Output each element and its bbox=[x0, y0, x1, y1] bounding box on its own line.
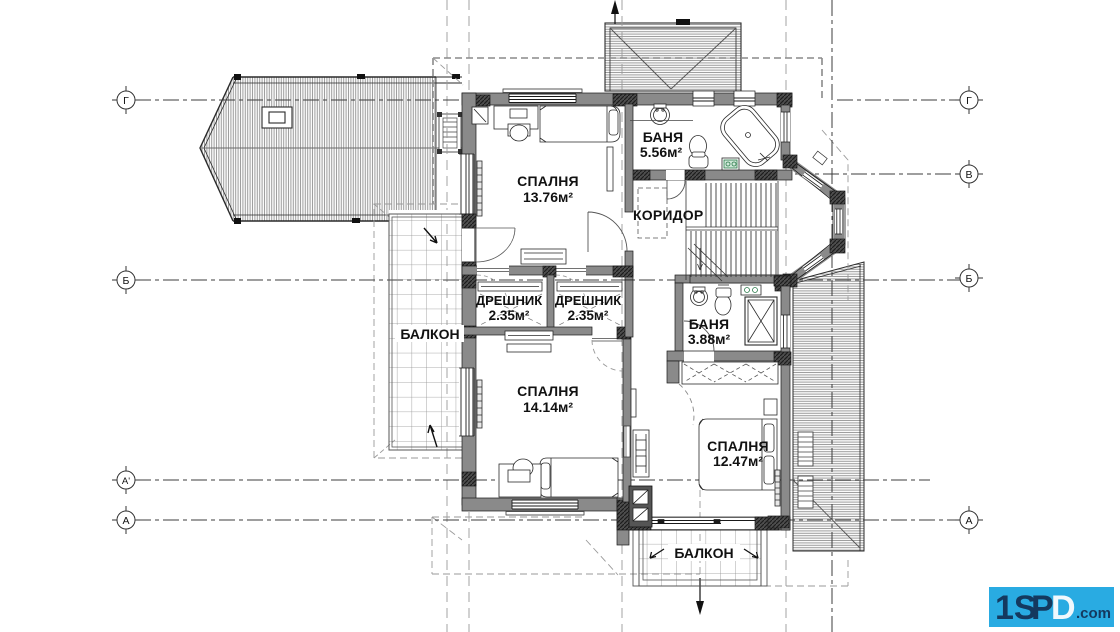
svg-text:D: D bbox=[1051, 589, 1076, 627]
svg-text:КОРИДОР: КОРИДОР bbox=[633, 207, 703, 223]
svg-text:14.14м²: 14.14м² bbox=[523, 399, 573, 415]
svg-text:БАНЯ: БАНЯ bbox=[643, 129, 684, 145]
svg-text:В: В bbox=[965, 169, 972, 181]
svg-text:СПАЛНЯ: СПАЛНЯ bbox=[517, 173, 579, 189]
svg-text:Г: Г bbox=[123, 95, 129, 107]
svg-text:Б: Б bbox=[966, 273, 973, 285]
svg-text:3.88м²: 3.88м² bbox=[688, 331, 731, 347]
svg-text:2.35м²: 2.35м² bbox=[568, 308, 609, 323]
svg-text:2.35м²: 2.35м² bbox=[489, 308, 530, 323]
svg-text:СПАЛНЯ: СПАЛНЯ bbox=[517, 383, 579, 399]
svg-text:А': А' bbox=[122, 476, 130, 487]
svg-text:.com: .com bbox=[1076, 605, 1111, 622]
svg-text:А: А bbox=[965, 515, 972, 527]
svg-text:13.76м²: 13.76м² bbox=[523, 189, 573, 205]
svg-text:12.47м²: 12.47м² bbox=[713, 453, 763, 469]
svg-text:БАЛКОН: БАЛКОН bbox=[400, 326, 459, 342]
svg-text:БАНЯ: БАНЯ bbox=[689, 316, 730, 332]
svg-text:ДРЕШНИК: ДРЕШНИК bbox=[476, 293, 542, 308]
svg-text:А: А bbox=[122, 515, 129, 527]
svg-text:Б: Б bbox=[123, 275, 130, 287]
svg-text:БАЛКОН: БАЛКОН bbox=[674, 545, 733, 561]
svg-text:ДРЕШНИК: ДРЕШНИК bbox=[555, 293, 621, 308]
svg-text:5.56м²: 5.56м² bbox=[640, 144, 683, 160]
svg-text:СПАЛНЯ: СПАЛНЯ bbox=[707, 438, 769, 454]
svg-text:Г: Г bbox=[966, 95, 972, 107]
